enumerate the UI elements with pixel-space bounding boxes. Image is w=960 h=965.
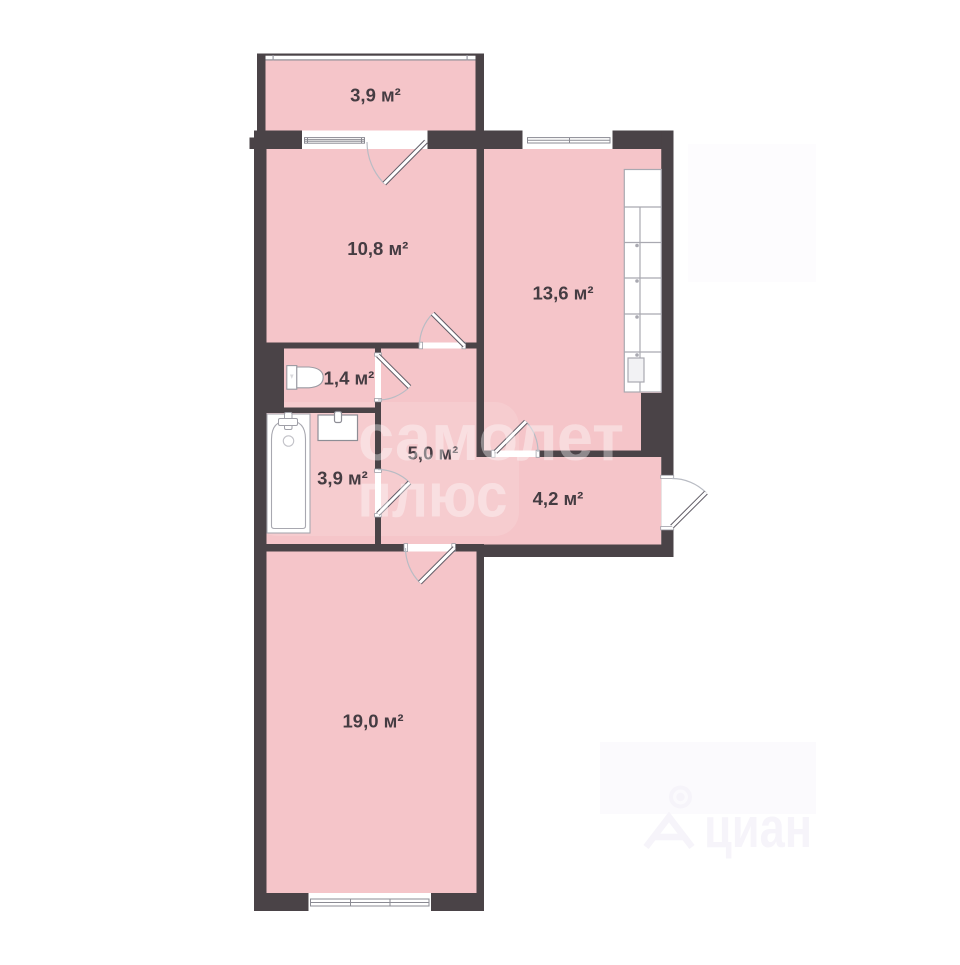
svg-text:плюс: плюс — [358, 462, 508, 531]
svg-text:3,9 м²: 3,9 м² — [350, 85, 401, 106]
svg-text:19,0 м²: 19,0 м² — [343, 711, 404, 732]
svg-text:1,4 м²: 1,4 м² — [324, 368, 375, 389]
svg-text:4,2 м²: 4,2 м² — [533, 488, 584, 509]
svg-text:циан: циан — [704, 796, 812, 860]
svg-text:10,8 м²: 10,8 м² — [347, 238, 408, 259]
svg-text:13,6 м²: 13,6 м² — [533, 283, 594, 304]
